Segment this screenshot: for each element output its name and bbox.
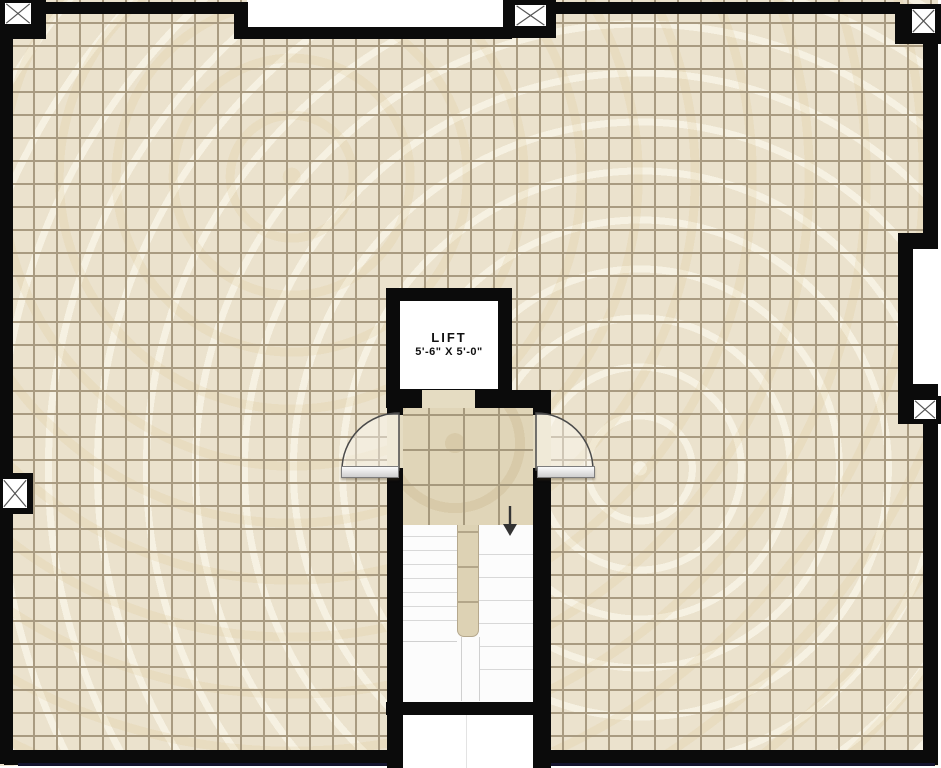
stair-lower-landing bbox=[403, 715, 533, 768]
stair-flight-right bbox=[479, 548, 533, 692]
wall-right-lower bbox=[923, 424, 938, 752]
outside-right-recess bbox=[913, 248, 941, 384]
wall-right-upper bbox=[923, 40, 938, 236]
lift-lobby-wall-connector bbox=[505, 390, 551, 408]
door-opening-left bbox=[387, 415, 403, 468]
column-marker bbox=[513, 3, 548, 28]
floor-plan: LIFT 5'-6" X 5'-0" bbox=[0, 0, 941, 768]
x-cross-icon bbox=[5, 3, 31, 24]
wall-right-notch-top bbox=[898, 233, 938, 249]
lift-door-opening bbox=[422, 390, 475, 408]
door-leaf-left bbox=[341, 466, 399, 478]
door-leaf-right bbox=[537, 466, 595, 478]
x-cross-icon bbox=[515, 5, 546, 26]
wall-top-left-run bbox=[46, 2, 238, 14]
stair-flight-left bbox=[403, 536, 457, 634]
stair-line bbox=[461, 637, 462, 701]
stair-shaft-wall-right bbox=[533, 468, 551, 768]
wall-right-recessed-run bbox=[898, 249, 913, 384]
lift-label: LIFT bbox=[431, 330, 466, 345]
column-marker bbox=[912, 398, 938, 421]
lift-cabin: LIFT 5'-6" X 5'-0" bbox=[400, 301, 498, 389]
stair-shaft-wall-left bbox=[387, 468, 403, 768]
stair-line bbox=[403, 641, 457, 642]
door-opening-right bbox=[533, 415, 551, 468]
wall-top-right-run bbox=[556, 2, 900, 14]
x-cross-icon bbox=[912, 9, 935, 33]
outside-top-recess bbox=[247, 0, 503, 28]
stair-landing-wall bbox=[386, 702, 551, 715]
x-cross-icon bbox=[914, 400, 936, 419]
x-cross-icon bbox=[3, 479, 27, 508]
lift-dimensions: 5'-6" X 5'-0" bbox=[415, 345, 482, 360]
wall-top-recessed-run bbox=[234, 27, 512, 39]
stair-divider-wall bbox=[457, 525, 479, 637]
column-marker bbox=[3, 1, 33, 26]
stair-line bbox=[466, 715, 467, 768]
column-marker bbox=[1, 477, 29, 510]
wall-left bbox=[0, 0, 13, 764]
column-marker bbox=[910, 7, 937, 35]
stairs-down-arrow-icon bbox=[498, 503, 522, 539]
stair-line bbox=[479, 637, 480, 701]
